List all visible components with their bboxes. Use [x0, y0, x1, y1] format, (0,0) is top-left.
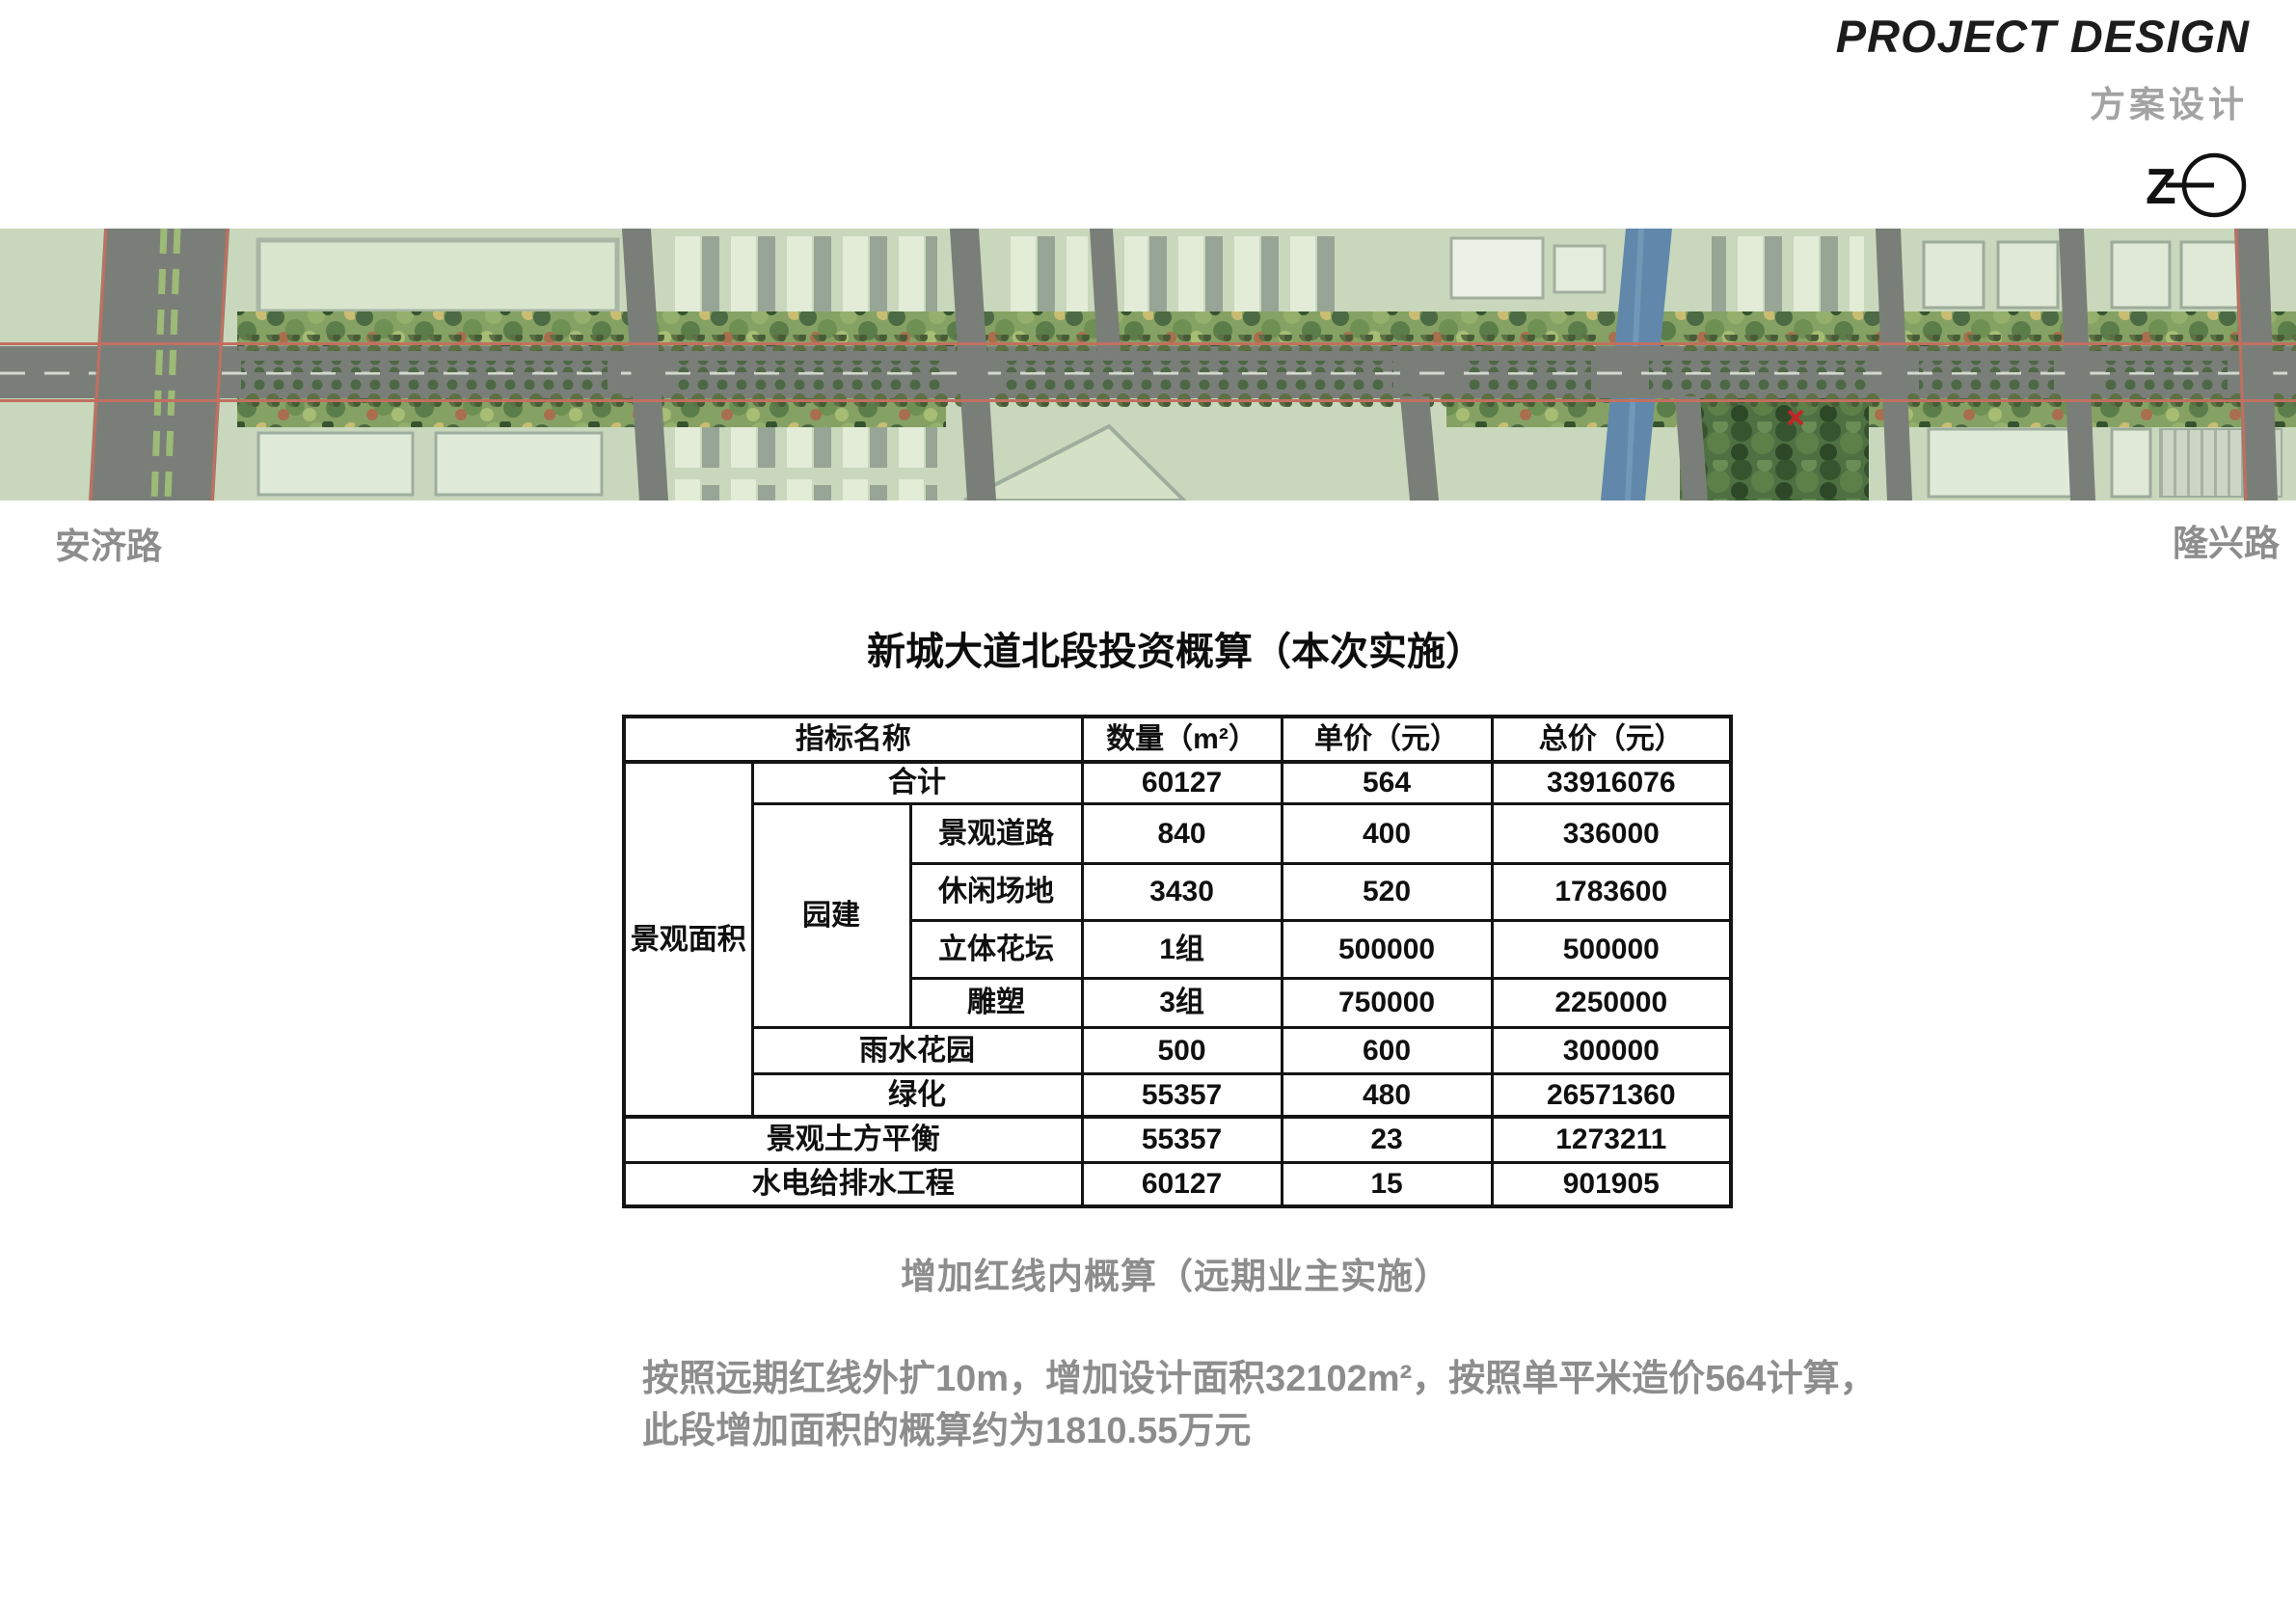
row-group-garden: 园建: [752, 803, 910, 1027]
cell-total-unit: 564: [1282, 762, 1492, 803]
cell-unit: 23: [1282, 1117, 1492, 1162]
note-body-line1: 按照远期红线外扩10m，增加设计面积32102m²，按照单平米造价564计算，: [642, 1354, 2069, 1406]
page-subtitle: 方案设计: [1380, 75, 2248, 127]
col-header-total-price: 总价（元）: [1492, 717, 1731, 762]
master-plan-map: [0, 229, 2296, 501]
cell-total-qty: 60127: [1082, 762, 1282, 803]
cell-qty: 500: [1082, 1027, 1282, 1073]
cell-qty: 3组: [1082, 978, 1282, 1027]
note-body-line2: 此段增加面积的概算约为1810.55万元: [642, 1406, 2069, 1458]
road-label-anji: 安济路: [55, 517, 162, 569]
cell-qty: 3430: [1082, 863, 1282, 920]
row-label-flower-bed: 立体花坛: [910, 920, 1082, 978]
cell-unit: 15: [1282, 1162, 1492, 1206]
cell-amount: 26571360: [1492, 1073, 1731, 1117]
map-tree-park: [1680, 398, 1869, 501]
cell-amount: 336000: [1492, 803, 1731, 863]
cell-unit: 520: [1282, 863, 1492, 920]
row-label-leisure-ground: 休闲场地: [910, 863, 1082, 920]
cell-amount: 500000: [1492, 920, 1731, 978]
north-arrow-icon: Z: [2133, 145, 2264, 237]
road-label-longxing: 隆兴路: [2173, 514, 2280, 566]
cell-unit: 480: [1282, 1073, 1492, 1117]
cell-amount: 901905: [1492, 1162, 1731, 1206]
row-group-landscape-area: 景观面积: [624, 762, 752, 1117]
cell-qty: 55357: [1082, 1073, 1282, 1117]
cell-qty: 1组: [1082, 920, 1282, 978]
cell-qty: 55357: [1082, 1117, 1282, 1162]
cell-amount: 2250000: [1492, 978, 1731, 1027]
cell-qty: 60127: [1082, 1162, 1282, 1206]
col-header-quantity: 数量（m²）: [1082, 717, 1282, 762]
col-header-unit-price: 单价（元）: [1282, 717, 1492, 762]
cell-amount: 1783600: [1492, 863, 1731, 920]
row-label-landscape-road: 景观道路: [910, 803, 1082, 863]
cell-unit: 500000: [1282, 920, 1492, 978]
page-title: PROJECT DESIGN: [1382, 10, 2250, 63]
cell-amount: 300000: [1492, 1027, 1731, 1073]
row-label-sculpture: 雕塑: [910, 978, 1082, 1027]
budget-table-wrapper: 指标名称 数量（m²） 单价（元） 总价（元） 景观面积 合计 60127 56…: [622, 715, 1729, 1208]
row-label-plumbing: 水电给排水工程: [624, 1162, 1082, 1206]
row-label-earthwork: 景观土方平衡: [624, 1117, 1082, 1162]
budget-table: 指标名称 数量（m²） 单价（元） 总价（元） 景观面积 合计 60127 56…: [622, 715, 1733, 1208]
note-subtitle: 增加红线内概算（远期业主实施）: [622, 1247, 1729, 1299]
cell-qty: 840: [1082, 803, 1282, 863]
note-body: 按照远期红线外扩10m，增加设计面积32102m²，按照单平米造价564计算， …: [642, 1354, 2069, 1458]
row-label-greening: 绿化: [752, 1073, 1082, 1117]
budget-table-title: 新城大道北段投资概算（本次实施）: [622, 620, 1729, 676]
cell-unit: 400: [1282, 803, 1492, 863]
row-label-rain-garden: 雨水花园: [752, 1027, 1082, 1073]
row-label-total: 合计: [752, 762, 1082, 803]
cell-total-amount: 33916076: [1492, 762, 1731, 803]
cell-unit: 600: [1282, 1027, 1492, 1073]
slide-page: { "header": { "title_en": "PROJECT DESIG…: [0, 0, 2296, 1624]
col-header-indicator: 指标名称: [624, 717, 1082, 762]
cell-unit: 750000: [1282, 978, 1492, 1027]
cell-amount: 1273211: [1492, 1117, 1731, 1162]
